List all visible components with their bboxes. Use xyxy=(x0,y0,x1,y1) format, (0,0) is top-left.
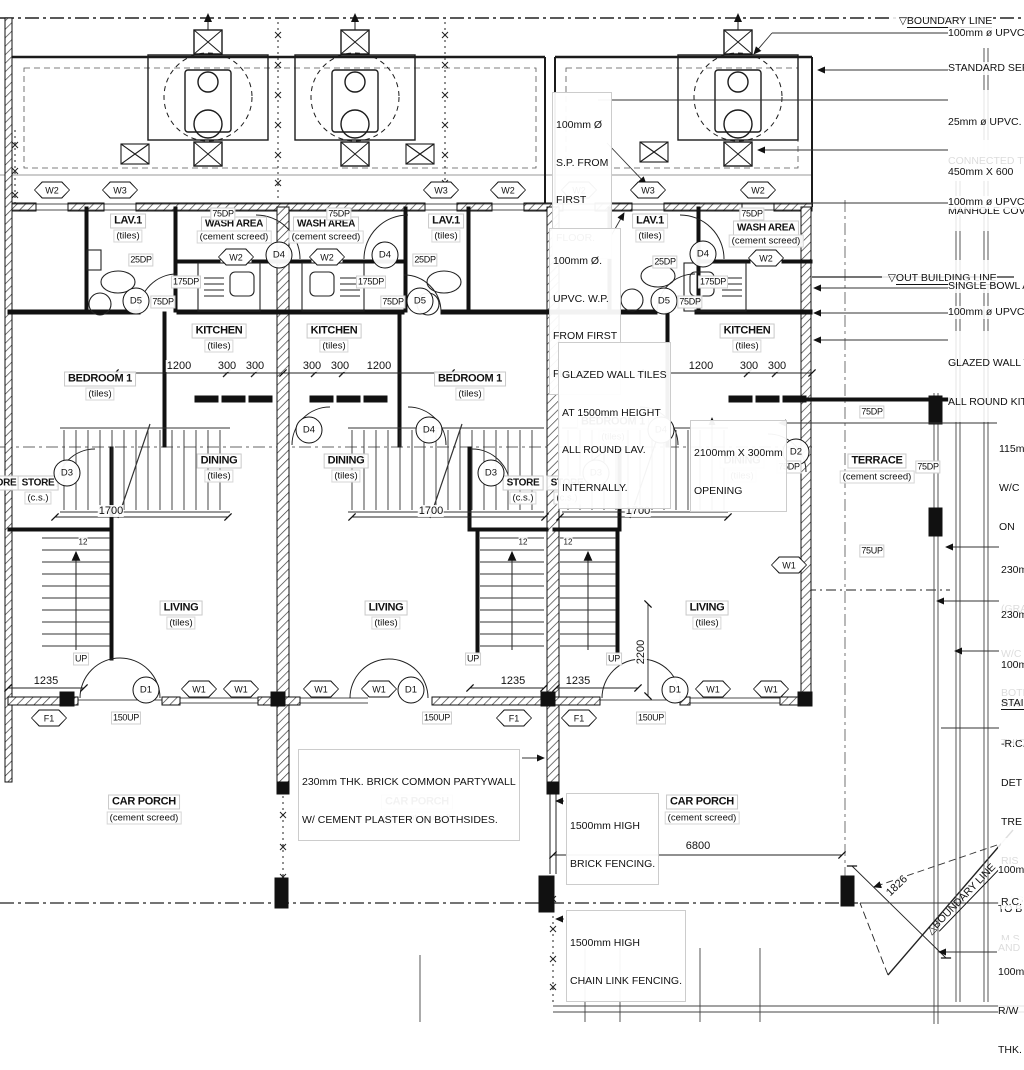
room-finish-terrace: (cement screed) xyxy=(840,471,915,484)
note-line: W/ CEMENT PLASTER ON BOTHSIDES. xyxy=(302,814,516,827)
room-label-dining: DINING xyxy=(324,454,369,469)
tag-text: W2 xyxy=(35,183,69,198)
note-line: 100mm Ø xyxy=(556,119,608,132)
stair-tread-count: 12 xyxy=(79,538,88,547)
note-line: 2100mm X 300mm xyxy=(694,447,783,460)
level-mark-175dp: 175DP xyxy=(356,276,386,289)
tag-text: F1 xyxy=(497,711,531,726)
note-line: OPENING xyxy=(694,485,783,498)
door-tag-d1: D1 xyxy=(133,677,160,704)
tag-text: W1 xyxy=(696,682,730,697)
room-label-living: LIVING xyxy=(365,601,408,616)
note-line: CHAIN LINK FENCING. xyxy=(570,975,682,988)
door-tag-d3: D3 xyxy=(54,460,81,487)
level-mark-25dp: 25DP xyxy=(412,254,437,267)
callout-line: 450mm X 600 xyxy=(948,166,1024,179)
room-finish-living: (tiles) xyxy=(166,617,195,630)
door-tag-d3: D3 xyxy=(478,460,505,487)
callout-line: -R.C. xyxy=(1001,738,1024,751)
note-line: ALL ROUND LAV. xyxy=(562,444,667,457)
room-label-carporch: CAR PORCH xyxy=(108,795,180,810)
callout-line: 230m xyxy=(1001,609,1024,622)
room-label-bedroom1: BEDROOM 1 xyxy=(434,372,506,387)
door-tag-d5: D5 xyxy=(407,288,434,315)
tag-text: W3 xyxy=(103,183,137,198)
room-finish-carporch: (cement screed) xyxy=(665,812,740,825)
level-mark-175dp: 175DP xyxy=(698,276,728,289)
room-label-kitchen: KITCHEN xyxy=(720,324,775,339)
note-chain-link-fencing: 1500mm HIGH CHAIN LINK FENCING. xyxy=(566,910,686,1002)
callout-line: ALL ROUND KIT xyxy=(948,396,1024,409)
room-finish-lav1: (tiles) xyxy=(113,230,142,243)
stair-tread-count: 12 xyxy=(564,538,573,547)
level-mark-75dp: 75DP xyxy=(326,208,351,221)
callout-line: 100m xyxy=(998,966,1024,979)
room-finish-dining: (tiles) xyxy=(204,470,233,483)
dim-2200: 2200 xyxy=(635,639,647,665)
dim-300: 300 xyxy=(302,360,322,372)
callout-line: 25mm ø UPVC. xyxy=(948,116,1024,129)
room-finish-living: (tiles) xyxy=(692,617,721,630)
callout-line: 100m xyxy=(998,864,1024,877)
room-finish-living: (tiles) xyxy=(371,617,400,630)
note-line: GLAZED WALL TILES xyxy=(562,369,667,382)
door-tag-d4: D4 xyxy=(690,241,717,268)
level-mark-75dp: 75DP xyxy=(677,296,702,309)
room-label-kitchen: KITCHEN xyxy=(192,324,247,339)
callout-rc: R.C. xyxy=(1001,896,1022,909)
level-mark-75dp: 75DP xyxy=(150,296,175,309)
room-label-bedroom1: BEDROOM 1 xyxy=(64,372,136,387)
door-tag-d4: D4 xyxy=(296,417,323,444)
level-mark-150up: 150UP xyxy=(111,712,141,725)
door-tag-d4: D4 xyxy=(266,242,293,269)
note-line: 230mm THK. BRICK COMMON PARTYWALL xyxy=(302,776,516,789)
callout-upvc-mid: 100mm ø UPVC xyxy=(948,196,1024,209)
tag-text: W1 xyxy=(772,558,806,573)
note-line: AT 1500mm HEIGHT xyxy=(562,407,667,420)
tag-text: W1 xyxy=(182,682,216,697)
door-tag-d4: D4 xyxy=(372,242,399,269)
note-line: 1500mm HIGH xyxy=(570,820,655,833)
callout-upvc-top: 100mm ø UPVC xyxy=(948,27,1024,40)
dim-300: 300 xyxy=(217,360,237,372)
room-finish-bedroom1: (tiles) xyxy=(455,388,484,401)
dim-300: 300 xyxy=(767,360,787,372)
tag-text: W1 xyxy=(754,682,788,697)
callout-line: 100m xyxy=(1001,659,1024,672)
room-label-wash: WASH AREA xyxy=(733,221,799,236)
note-line: INTERNALLY. xyxy=(562,482,667,495)
room-finish-store: (c.s.) xyxy=(24,492,51,505)
tag-text: W1 xyxy=(304,682,338,697)
callout-line: R/W xyxy=(998,1005,1024,1018)
stair-up-label: UP xyxy=(465,653,481,666)
door-tag-d5: D5 xyxy=(651,288,678,315)
callout-line: GLAZED WALL T xyxy=(948,357,1024,370)
room-finish-kitchen: (tiles) xyxy=(732,340,761,353)
tag-text: W2 xyxy=(741,183,775,198)
room-label-living: LIVING xyxy=(686,601,729,616)
level-mark-150up: 150UP xyxy=(422,712,452,725)
room-label-living: LIVING xyxy=(160,601,203,616)
tag-text: F1 xyxy=(32,711,66,726)
room-finish-lav1: (tiles) xyxy=(431,230,460,243)
stair-up-label: UP xyxy=(606,653,622,666)
room-label-store: STORE xyxy=(18,476,59,491)
stair-up-label: UP xyxy=(73,653,89,666)
room-finish-dining: (tiles) xyxy=(331,470,360,483)
dim-1235: 1235 xyxy=(500,675,526,687)
level-mark-75dp: 75DP xyxy=(739,208,764,221)
room-label-lav1: LAV.1 xyxy=(110,214,146,229)
tag-text: W3 xyxy=(424,183,458,198)
room-finish-carporch: (cement screed) xyxy=(107,812,182,825)
room-finish-bedroom1: (tiles) xyxy=(85,388,114,401)
dim-300: 300 xyxy=(330,360,350,372)
boundary-line-label: ▽BOUNDARY LINE xyxy=(893,3,992,27)
note-line: BRICK FENCING. xyxy=(570,858,655,871)
level-mark-150up: 150UP xyxy=(636,712,666,725)
callout-manhole: 450mm X 600 MANHOLE COVER xyxy=(948,140,1024,231)
room-label-lav1: LAV.1 xyxy=(428,214,464,229)
note-line: 1500mm HIGH xyxy=(570,937,682,950)
room-finish-wash: (cement screed) xyxy=(729,235,804,248)
door-tag-d1: D1 xyxy=(398,677,425,704)
tag-text: W2 xyxy=(749,251,783,266)
room-label-kitchen: KITCHEN xyxy=(307,324,362,339)
stair-tread-count: 12 xyxy=(519,538,528,547)
level-mark-75dp: 75DP xyxy=(859,406,884,419)
tag-text: W2 xyxy=(491,183,525,198)
note-line: FROM FIRST xyxy=(553,330,617,343)
tag-text: W1 xyxy=(362,682,396,697)
door-tag-d5: D5 xyxy=(123,288,150,315)
level-mark-75dp: 75DP xyxy=(380,296,405,309)
level-mark-75dp: 75DP xyxy=(915,461,940,474)
note-glazed-tiles: GLAZED WALL TILES AT 1500mm HEIGHT ALL R… xyxy=(558,342,671,509)
room-label-carporch: CAR PORCH xyxy=(666,795,738,810)
level-mark-175dp: 175DP xyxy=(171,276,201,289)
triangle-down-icon: ▽ xyxy=(899,15,907,27)
note-line: UPVC. W.P. xyxy=(553,293,617,306)
callout-line: ON xyxy=(999,521,1024,534)
triangle-down-icon: ▽ xyxy=(888,272,896,284)
callout-line: DET xyxy=(1001,777,1024,790)
door-tag-d4: D4 xyxy=(416,417,443,444)
dim-300: 300 xyxy=(245,360,265,372)
room-label-store: STORE xyxy=(503,476,544,491)
tag-text: W2 xyxy=(219,250,253,265)
tag-text: W1 xyxy=(224,682,258,697)
room-label-lav1: LAV.1 xyxy=(632,214,668,229)
note-opening: 2100mm X 300mm OPENING xyxy=(690,420,787,512)
note-partywall: 230mm THK. BRICK COMMON PARTYWALL W/ CEM… xyxy=(298,749,520,841)
dim-300: 300 xyxy=(739,360,759,372)
note-line: 100mm Ø. xyxy=(553,255,617,268)
callout-upvc-out: 100mm ø UPVC xyxy=(948,306,1024,319)
callout-glazed-kitchen: GLAZED WALL T ALL ROUND KIT xyxy=(948,331,1024,422)
callout-line: 115m xyxy=(999,443,1024,456)
level-mark-25dp: 25DP xyxy=(652,256,677,269)
dim-1200: 1200 xyxy=(366,360,392,372)
callout-septic-tank: STANDARD SEPT xyxy=(948,62,1024,75)
dim-6800: 6800 xyxy=(685,840,711,852)
callout-line: TRE xyxy=(1001,816,1024,829)
callout-wall-115: 115m W/C ON xyxy=(999,417,1024,547)
floor-plan-page: { "drawing": { "boundary_top": "BOUNDARY… xyxy=(0,0,1024,1024)
callout-100-thk: 100m R/W THK. xyxy=(998,940,1024,1070)
callout-stair-heading: STAIR xyxy=(1001,697,1024,710)
room-finish-wash: (cement screed) xyxy=(197,231,272,244)
tag-text: F1 xyxy=(562,711,596,726)
room-finish-kitchen: (tiles) xyxy=(319,340,348,353)
note-line: S.P. FROM xyxy=(556,157,608,170)
dim-1200: 1200 xyxy=(688,360,714,372)
stair-heading-text: STAIR xyxy=(1001,697,1024,710)
note-brick-fencing: 1500mm HIGH BRICK FENCING. xyxy=(566,793,659,885)
callout-line: W/C xyxy=(999,482,1024,495)
dim-1200: 1200 xyxy=(166,360,192,372)
room-finish-kitchen: (tiles) xyxy=(204,340,233,353)
room-label-terrace: TERRACE xyxy=(847,454,906,469)
tag-text: W3 xyxy=(631,183,665,198)
dim-1700: 1700 xyxy=(98,505,124,517)
room-finish-store: (c.s.) xyxy=(509,492,536,505)
door-tag-d1: D1 xyxy=(662,677,689,704)
tag-text: W2 xyxy=(310,250,344,265)
dim-1700: 1700 xyxy=(418,505,444,517)
note-line: FIRST xyxy=(556,194,608,207)
level-mark-75dp: 75DP xyxy=(210,208,235,221)
level-mark-25dp: 25DP xyxy=(128,254,153,267)
level-mark-75up: 75UP xyxy=(859,545,884,558)
floorplan-linework xyxy=(0,0,1024,1024)
callout-line: 230m xyxy=(1001,564,1024,577)
dim-1235: 1235 xyxy=(565,675,591,687)
room-finish-lav1: (tiles) xyxy=(635,230,664,243)
callout-single-bowl: SINGLE BOWL A xyxy=(948,280,1024,293)
callout-line: THK. xyxy=(998,1044,1024,1057)
room-finish-wash: (cement screed) xyxy=(289,231,364,244)
room-label-dining: DINING xyxy=(197,454,242,469)
dim-1235: 1235 xyxy=(33,675,59,687)
